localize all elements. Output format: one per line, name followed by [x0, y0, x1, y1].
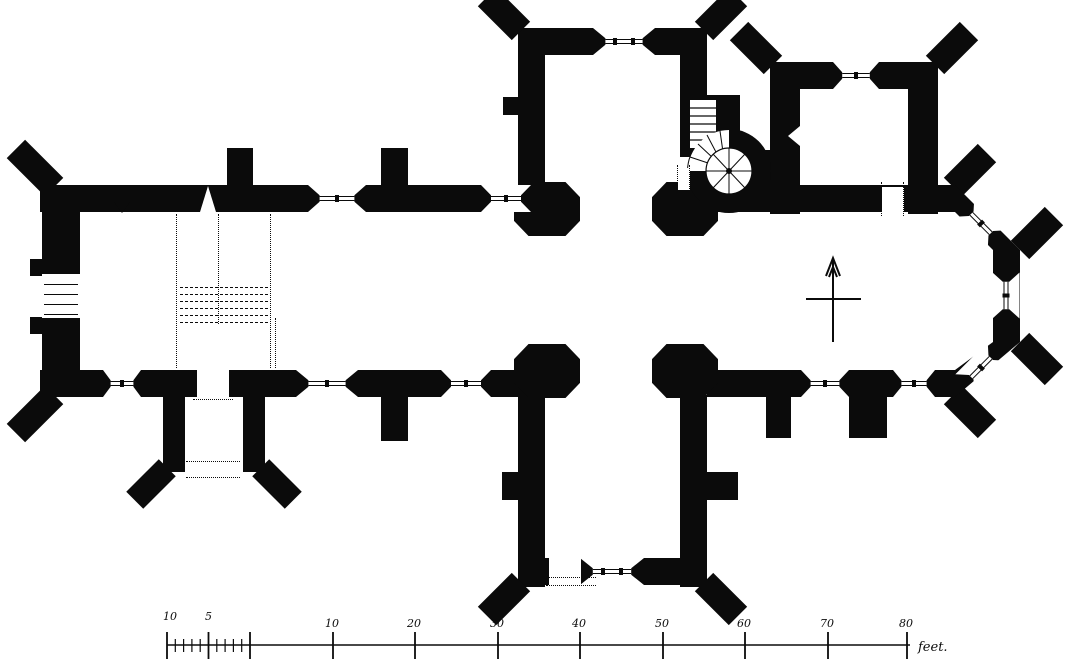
- west-window-bar: [44, 294, 78, 295]
- gallery-stair-tread: [180, 322, 268, 323]
- west-window-bar: [44, 284, 78, 285]
- turret-doorway-jamb: [677, 165, 678, 193]
- wall-south-porch-east: [243, 395, 265, 472]
- crossing-pier-southeast: [652, 344, 718, 398]
- buttress-chancel-south-2: [849, 396, 887, 438]
- buttress-nave-north-1: [227, 148, 253, 188]
- west-window-bar: [44, 304, 78, 305]
- plan-sheet: 1051020304050607080feet.: [0, 0, 1068, 672]
- scale-label: 60: [737, 617, 751, 630]
- buttress-chancel-south-1: [766, 396, 791, 438]
- scale-bar: 1051020304050607080feet.: [140, 595, 980, 670]
- scale-label: 10: [325, 617, 339, 630]
- scale-label: 70: [820, 617, 834, 630]
- chapel-doorway-jamb: [881, 182, 882, 216]
- porch-inner-door-line: [193, 399, 233, 400]
- window-west: [42, 274, 80, 318]
- scale-label: 5: [205, 610, 212, 623]
- south-transept-door-line: [546, 577, 596, 578]
- chapel-doorway: [882, 187, 904, 212]
- wall-nave-north: [40, 185, 548, 212]
- scale-unit-label: feet.: [917, 640, 948, 655]
- gallery-outline-east: [270, 214, 271, 368]
- buttress-north-transept-west: [503, 97, 533, 115]
- gallery-stair-tread: [180, 294, 268, 295]
- porch-outer-door-line: [186, 461, 240, 462]
- scale-label: 30: [490, 617, 504, 630]
- porch-outer-door-line: [186, 477, 240, 478]
- west-window-bar: [44, 314, 78, 315]
- south-doorway-to-porch: [197, 370, 229, 397]
- scale-label: 20: [406, 617, 421, 630]
- buttress-south-transept-east: [705, 472, 738, 500]
- gallery-stair-tread: [180, 315, 268, 316]
- buttress-south-transept-west: [502, 472, 532, 500]
- stair-turret: [655, 80, 785, 220]
- gallery-stair-tread: [180, 308, 268, 309]
- scale-label: 40: [571, 617, 586, 630]
- gallery-stair-tread: [180, 287, 268, 288]
- scale-label: 50: [655, 617, 669, 630]
- chapel-doorway-jamb: [903, 182, 904, 216]
- gallery-stair-tread: [180, 301, 268, 302]
- jamb-west-window-south: [30, 317, 43, 334]
- north-arrow: [795, 248, 875, 353]
- newel-post: [726, 168, 732, 174]
- south-transept-doorway: [549, 558, 581, 585]
- scale-label: 80: [899, 617, 913, 630]
- buttress-nave-south: [381, 396, 408, 441]
- south-transept-door-line: [546, 585, 596, 586]
- crossing-pier-southwest: [514, 344, 580, 398]
- gallery-outline-east-2: [275, 318, 276, 368]
- gallery-outline-west: [176, 214, 177, 368]
- wall-south-porch-west: [163, 395, 185, 472]
- buttress-nave-north-2: [381, 148, 408, 188]
- scale-label: 10: [163, 610, 177, 623]
- turret-doorway-jamb: [689, 165, 690, 193]
